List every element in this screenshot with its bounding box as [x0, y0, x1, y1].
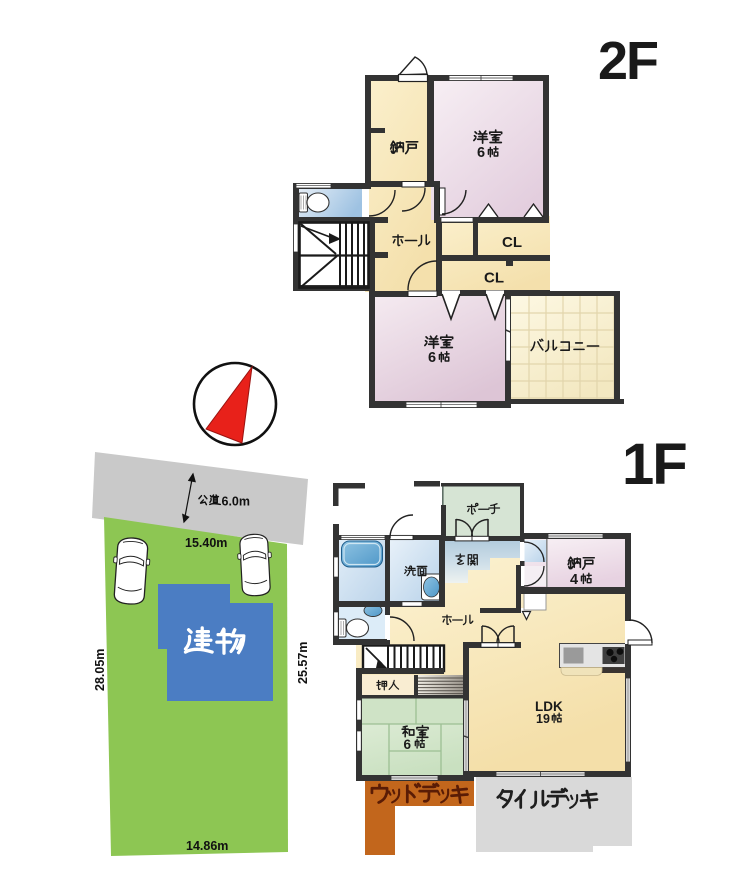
svg-text:6: 6	[428, 350, 436, 366]
svg-text:14.86m: 14.86m	[186, 839, 228, 853]
svg-text:6: 6	[477, 145, 485, 161]
svg-text:4: 4	[570, 572, 578, 588]
svg-text:25.57m: 25.57m	[296, 642, 310, 684]
svg-text:6.0m: 6.0m	[222, 495, 251, 509]
svg-text:28.05m: 28.05m	[93, 649, 107, 691]
svg-text:2F: 2F	[598, 31, 658, 91]
svg-text:15.40m: 15.40m	[185, 536, 227, 550]
svg-text:1F: 1F	[622, 432, 686, 497]
svg-text:6: 6	[404, 737, 412, 752]
svg-text:19: 19	[536, 712, 550, 726]
svg-text:CL: CL	[484, 270, 504, 287]
svg-text:CL: CL	[502, 234, 522, 251]
